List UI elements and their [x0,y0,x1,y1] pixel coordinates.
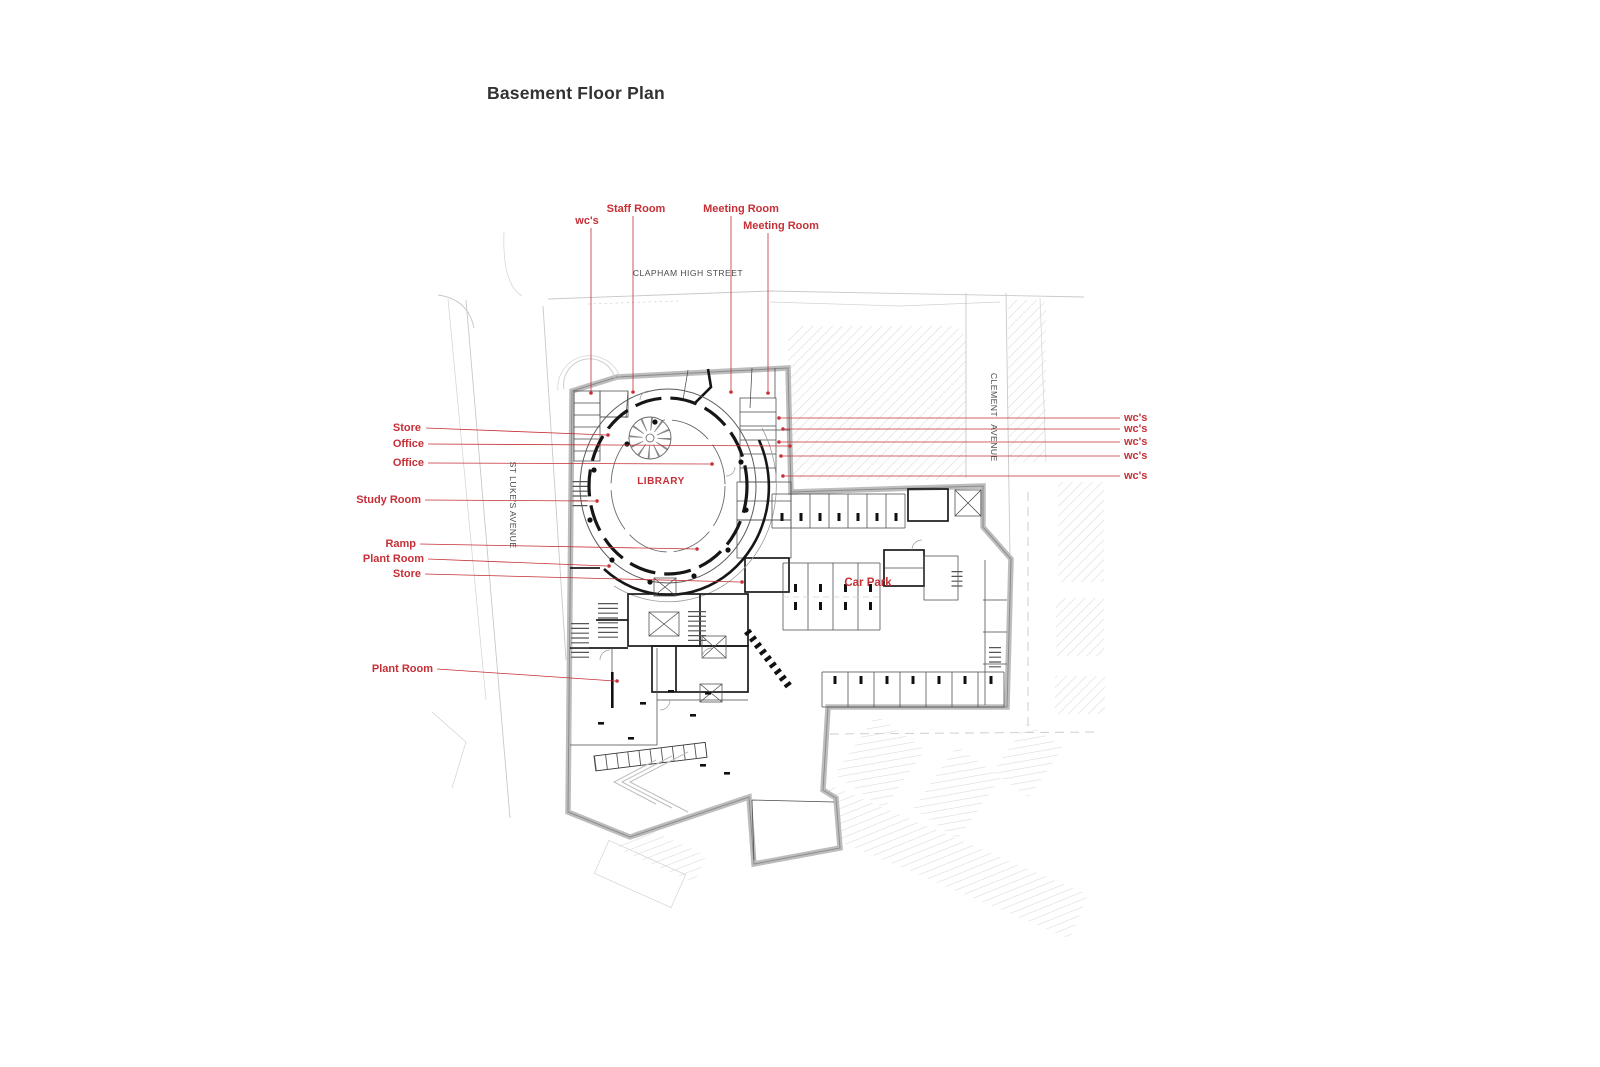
street-label-avenue: AVENUE [989,424,999,461]
annotation-wcs-top: wc's [574,215,598,395]
street-label-st-lukes-avenue: ST LUKE'S AVENUE [508,462,518,549]
annotation-staff-room: Staff Room [607,203,666,394]
street-label-clement: CLEMENT [989,373,999,418]
annotation-label: Plant Room [363,553,424,565]
annotation-study-room: Study Room [356,494,599,506]
floor-plan-page: wc's Staff Room Meeting Room Meeting Roo… [0,0,1600,1067]
street-label-clapham-high-street: CLAPHAM HIGH STREET [633,268,744,278]
floor-plan-canvas: wc's Staff Room Meeting Room Meeting Roo… [0,0,1600,1067]
annotation-label: Staff Room [607,203,666,215]
annotation-label: wc's [574,215,598,227]
annotation-label: Meeting Room [703,203,779,215]
annotation-label: Store [393,422,421,434]
page-title: Basement Floor Plan [487,83,665,103]
annotation-label: Study Room [356,494,421,506]
annotation-label: Ramp [385,538,416,550]
annotation-label: wc's [1123,436,1147,448]
annotation-label: wc's [1123,423,1147,435]
annotation-label: Plant Room [372,663,433,675]
annotation-label: Office [393,438,424,450]
annotation-label: Office [393,457,424,469]
annotation-label: Meeting Room [743,220,819,232]
annotation-label: wc's [1123,450,1147,462]
annotation-label: wc's [1123,470,1147,482]
room-label-car-park: Car Park [844,577,892,589]
room-label-library: LIBRARY [637,476,685,487]
annotation-label: Store [393,568,421,580]
